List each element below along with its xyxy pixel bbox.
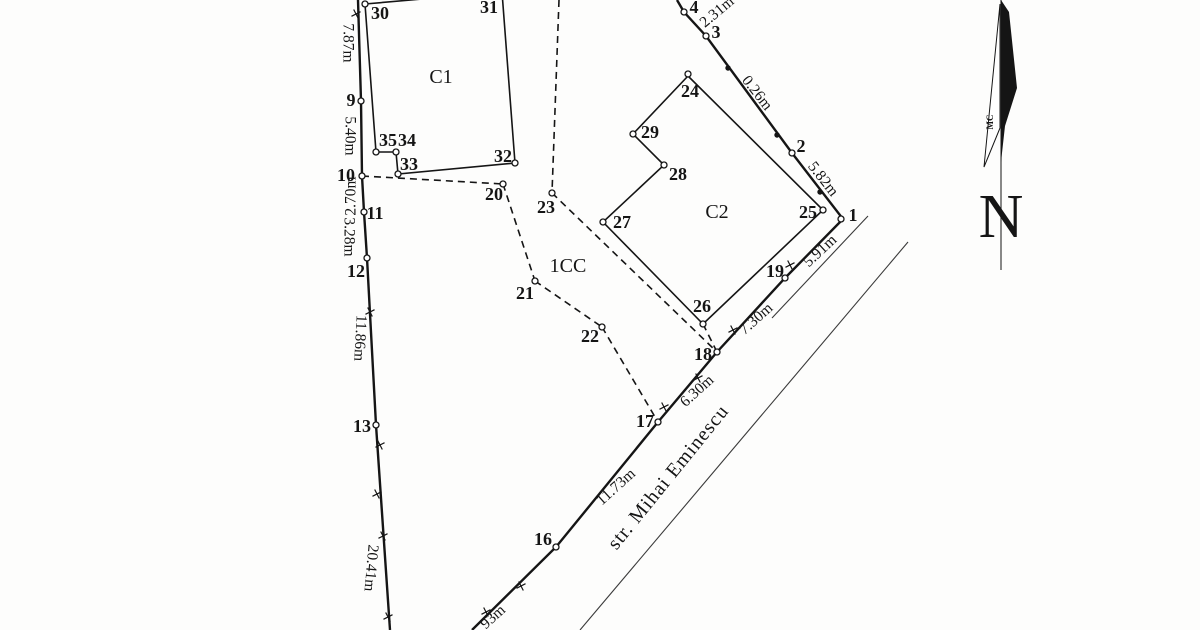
boundary-point-marker-24 <box>685 71 691 77</box>
dimension-label: 3.28m <box>341 217 358 256</box>
point-number-22: 22 <box>581 326 599 346</box>
point-number-27: 27 <box>613 212 631 232</box>
point-number-13: 13 <box>353 416 371 436</box>
point-number-34: 34 <box>398 130 416 150</box>
street-edge-lines <box>580 216 908 630</box>
dimension-label: 5.40m <box>342 116 359 155</box>
dashed-annotation-line <box>503 184 535 281</box>
north-letter: N <box>979 183 1024 251</box>
boundary-point-marker-3 <box>703 33 709 39</box>
point-number-26: 26 <box>693 296 711 316</box>
boundary-point-marker-9 <box>358 98 364 104</box>
boundary-point-marker-10 <box>359 173 365 179</box>
point-number-32: 32 <box>494 146 512 166</box>
boundary-point-marker-25 <box>820 207 826 213</box>
point-number-20: 20 <box>485 184 503 204</box>
building-label-1cc: 1CC <box>550 255 587 277</box>
north-arrow-left-blade <box>984 4 1000 167</box>
point-number-4: 4 <box>690 0 699 17</box>
point-number-labels: 1234910111213161718192021222324252627282… <box>337 0 858 549</box>
point-number-31: 31 <box>480 0 498 17</box>
dashed-annotation-line <box>602 327 658 422</box>
dimension-label: 93m <box>477 601 509 630</box>
point-number-9: 9 <box>347 90 356 110</box>
dashed-annotation-line <box>552 0 559 193</box>
point-number-17: 17 <box>636 411 654 431</box>
point-number-2: 2 <box>797 136 806 156</box>
boundary-point-marker-27 <box>600 219 606 225</box>
point-number-35: 35 <box>379 130 397 150</box>
point-number-28: 28 <box>669 164 687 184</box>
point-number-11: 11 <box>366 203 383 223</box>
dimension-label: 7.87m <box>340 23 357 62</box>
point-number-23: 23 <box>537 197 555 217</box>
point-number-33: 33 <box>400 154 418 174</box>
boundary-point-marker-1 <box>838 216 844 222</box>
building-outlines <box>365 0 823 324</box>
boundary-point-marker-28 <box>661 162 667 168</box>
dimension-label: 11.86m <box>350 314 369 361</box>
point-number-18: 18 <box>694 344 712 364</box>
building-outline-c2 <box>603 76 823 324</box>
boundary-point-marker-30 <box>362 1 368 7</box>
boundary-point-marker-32 <box>512 160 518 166</box>
point-number-24: 24 <box>681 81 699 101</box>
north-arrow: N MC <box>979 0 1024 270</box>
boundary-point-marker-29 <box>630 131 636 137</box>
boundary-point-marker-13 <box>373 422 379 428</box>
dashed-annotation-line <box>362 176 503 184</box>
building-label-c1: C1 <box>429 66 452 88</box>
dimension-label: 2.70m <box>343 176 360 215</box>
dimension-label: 7.30m <box>736 300 776 339</box>
boundary-point-marker-2 <box>789 150 795 156</box>
dimension-label: 20.41m <box>360 544 381 592</box>
boundary-point-marker-16 <box>553 544 559 550</box>
plan-canvas: 1234910111213161718192021222324252627282… <box>0 0 1200 630</box>
boundary-point-marker-26 <box>700 321 706 327</box>
point-number-30: 30 <box>371 3 389 23</box>
boundary-point-marker-4 <box>681 9 687 15</box>
intermediate-point-dot <box>774 132 779 137</box>
boundary-point-marker-17 <box>655 419 661 425</box>
boundary-tick-marks <box>351 9 794 621</box>
dimension-label: 5.91m <box>800 231 840 270</box>
point-number-29: 29 <box>641 122 659 142</box>
intermediate-point-dot <box>725 65 730 70</box>
dimension-label: 0.26m <box>738 72 776 113</box>
parcel-boundary-segment <box>472 0 843 630</box>
point-number-21: 21 <box>516 283 534 303</box>
point-number-1: 1 <box>849 205 858 225</box>
point-number-16: 16 <box>534 529 552 549</box>
dashed-annotation-line <box>535 281 602 327</box>
north-watermark-text: MC <box>985 115 995 130</box>
street-edge-line <box>580 242 908 630</box>
building-label-c2: C2 <box>705 201 728 223</box>
boundary-point-marker-22 <box>599 324 605 330</box>
boundary-point-marker-23 <box>549 190 555 196</box>
dimension-labels: 7.87m5.40m2.70m3.28m11.86m20.41m2.31m0.2… <box>340 0 842 630</box>
boundary-point-marker-18 <box>714 349 720 355</box>
point-number-19: 19 <box>766 261 784 281</box>
cadastral-plan: 1234910111213161718192021222324252627282… <box>0 0 1200 630</box>
point-number-25: 25 <box>799 202 817 222</box>
north-arrow-right-blade <box>1001 0 1017 162</box>
point-number-12: 12 <box>347 261 365 281</box>
